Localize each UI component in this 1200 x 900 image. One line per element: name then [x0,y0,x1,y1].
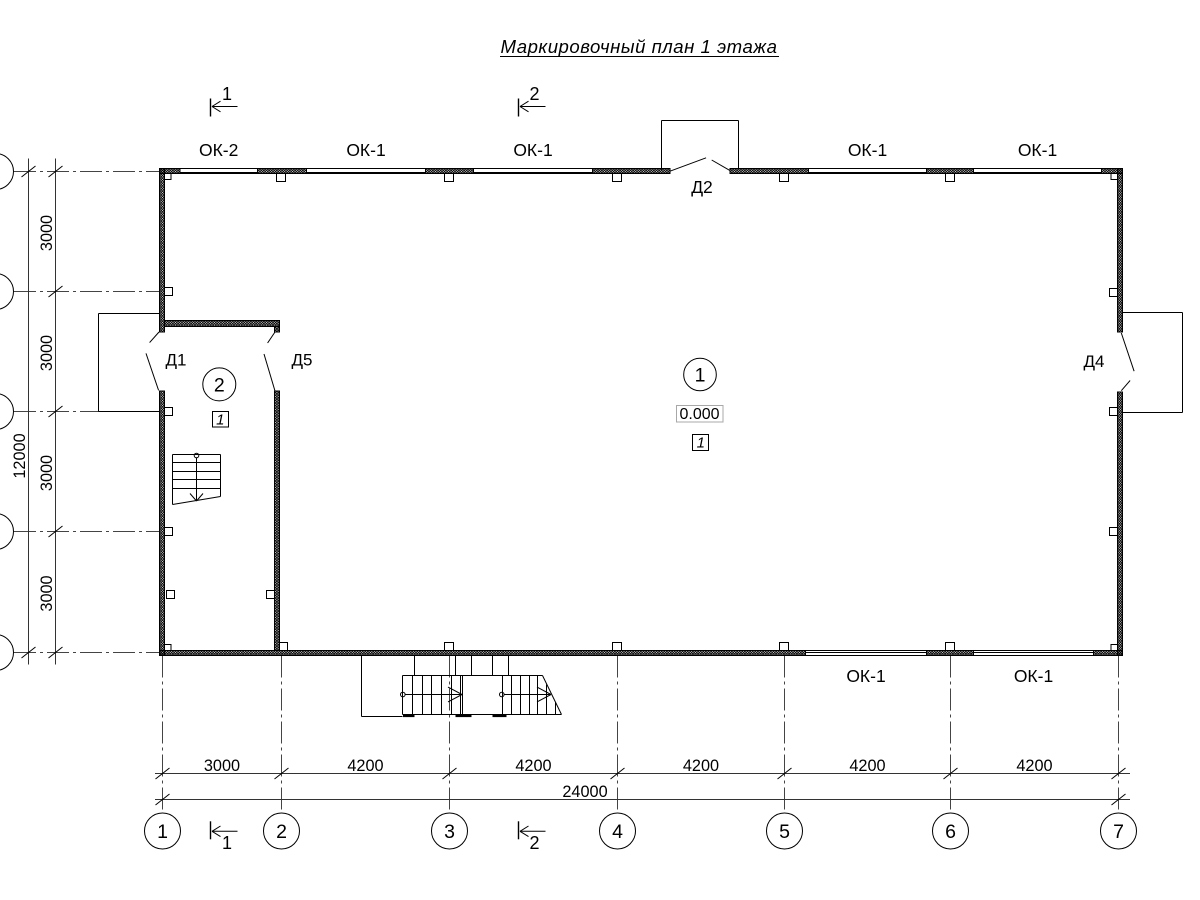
svg-text:12000: 12000 [11,433,29,478]
svg-text:5: 5 [779,821,790,843]
svg-text:ОК-1: ОК-1 [513,140,552,160]
svg-text:ОК-1: ОК-1 [846,666,885,686]
svg-text:2: 2 [529,84,539,104]
svg-text:24000: 24000 [562,783,607,801]
svg-text:4200: 4200 [849,757,885,775]
svg-text:ОК-1: ОК-1 [848,140,887,160]
svg-text:Д2: Д2 [691,177,713,197]
svg-text:7: 7 [1113,821,1124,843]
svg-text:4: 4 [612,821,623,843]
svg-text:ОК-1: ОК-1 [346,140,385,160]
svg-text:1: 1 [222,84,232,104]
svg-text:4200: 4200 [683,757,719,775]
svg-text:Д5: Д5 [292,351,313,370]
svg-text:1: 1 [697,434,705,451]
svg-text:1: 1 [216,411,224,428]
svg-text:4200: 4200 [347,757,383,775]
svg-text:4200: 4200 [1016,757,1052,775]
svg-text:3: 3 [444,821,455,843]
svg-text:3000: 3000 [38,575,56,611]
svg-text:ОК-2: ОК-2 [199,140,238,160]
svg-text:0.000: 0.000 [679,406,719,423]
svg-text:4200: 4200 [515,757,551,775]
svg-text:3000: 3000 [38,455,56,491]
svg-text:1: 1 [157,821,168,843]
svg-text:Д4: Д4 [1084,352,1105,371]
svg-text:3000: 3000 [204,757,240,775]
svg-text:Д1: Д1 [166,351,187,370]
svg-text:6: 6 [945,821,956,843]
svg-text:Маркировочный план 1 этажа: Маркировочный план 1 этажа [501,36,778,57]
svg-text:2: 2 [276,821,287,843]
svg-text:1: 1 [222,833,232,853]
svg-text:3000: 3000 [38,215,56,251]
svg-text:2: 2 [214,374,225,396]
svg-text:ОК-1: ОК-1 [1014,666,1053,686]
svg-text:3000: 3000 [38,335,56,371]
svg-text:2: 2 [529,833,539,853]
svg-text:ОК-1: ОК-1 [1018,140,1057,160]
svg-text:1: 1 [695,365,706,387]
